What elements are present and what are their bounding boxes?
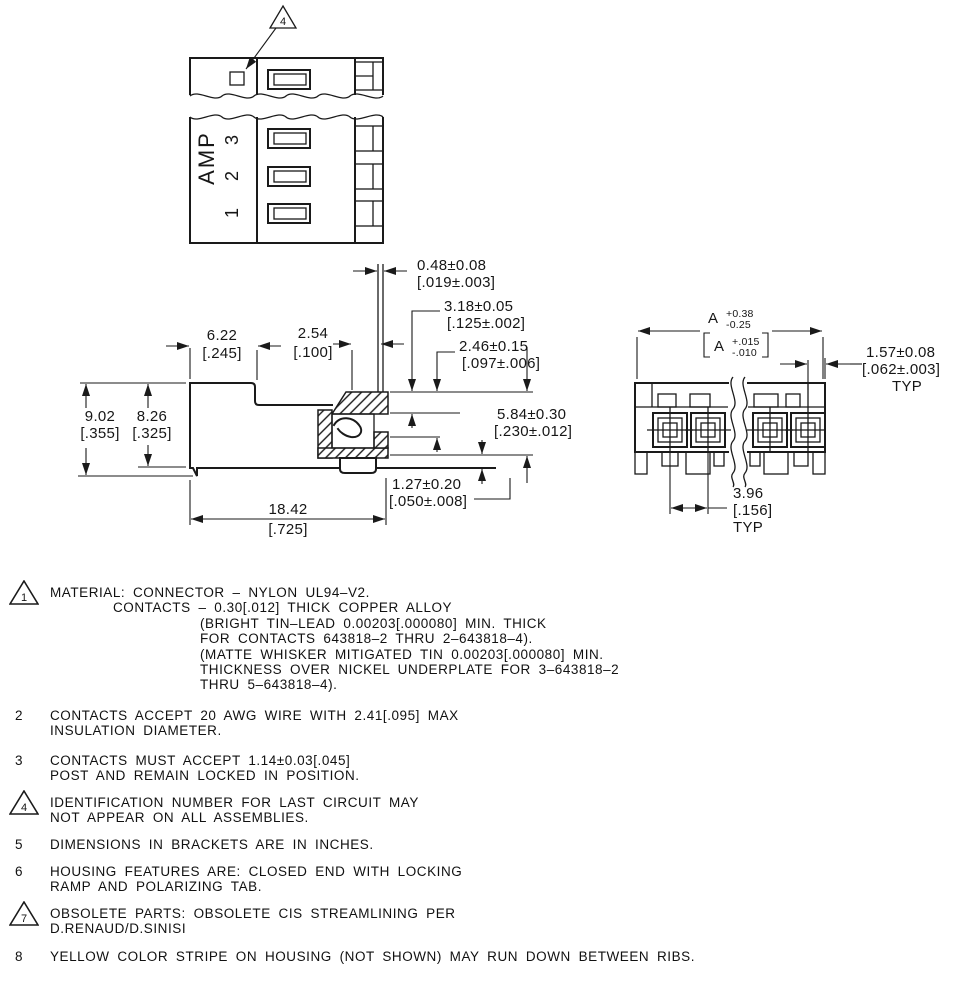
technical-drawing-sheet: AMP 3 2 1 4	[0, 0, 955, 1000]
svg-text:4: 4	[21, 802, 27, 814]
svg-text:7: 7	[21, 913, 27, 925]
note-flag-triangle: 4	[9, 790, 39, 816]
note-flag-triangle: 7	[9, 901, 39, 927]
svg-text:1: 1	[21, 592, 27, 604]
note-flag-triangle: 1	[9, 580, 39, 606]
notes-list: 1 MATERIAL: CONNECTOR – NYLON UL94–V2. C…	[0, 0, 955, 1000]
